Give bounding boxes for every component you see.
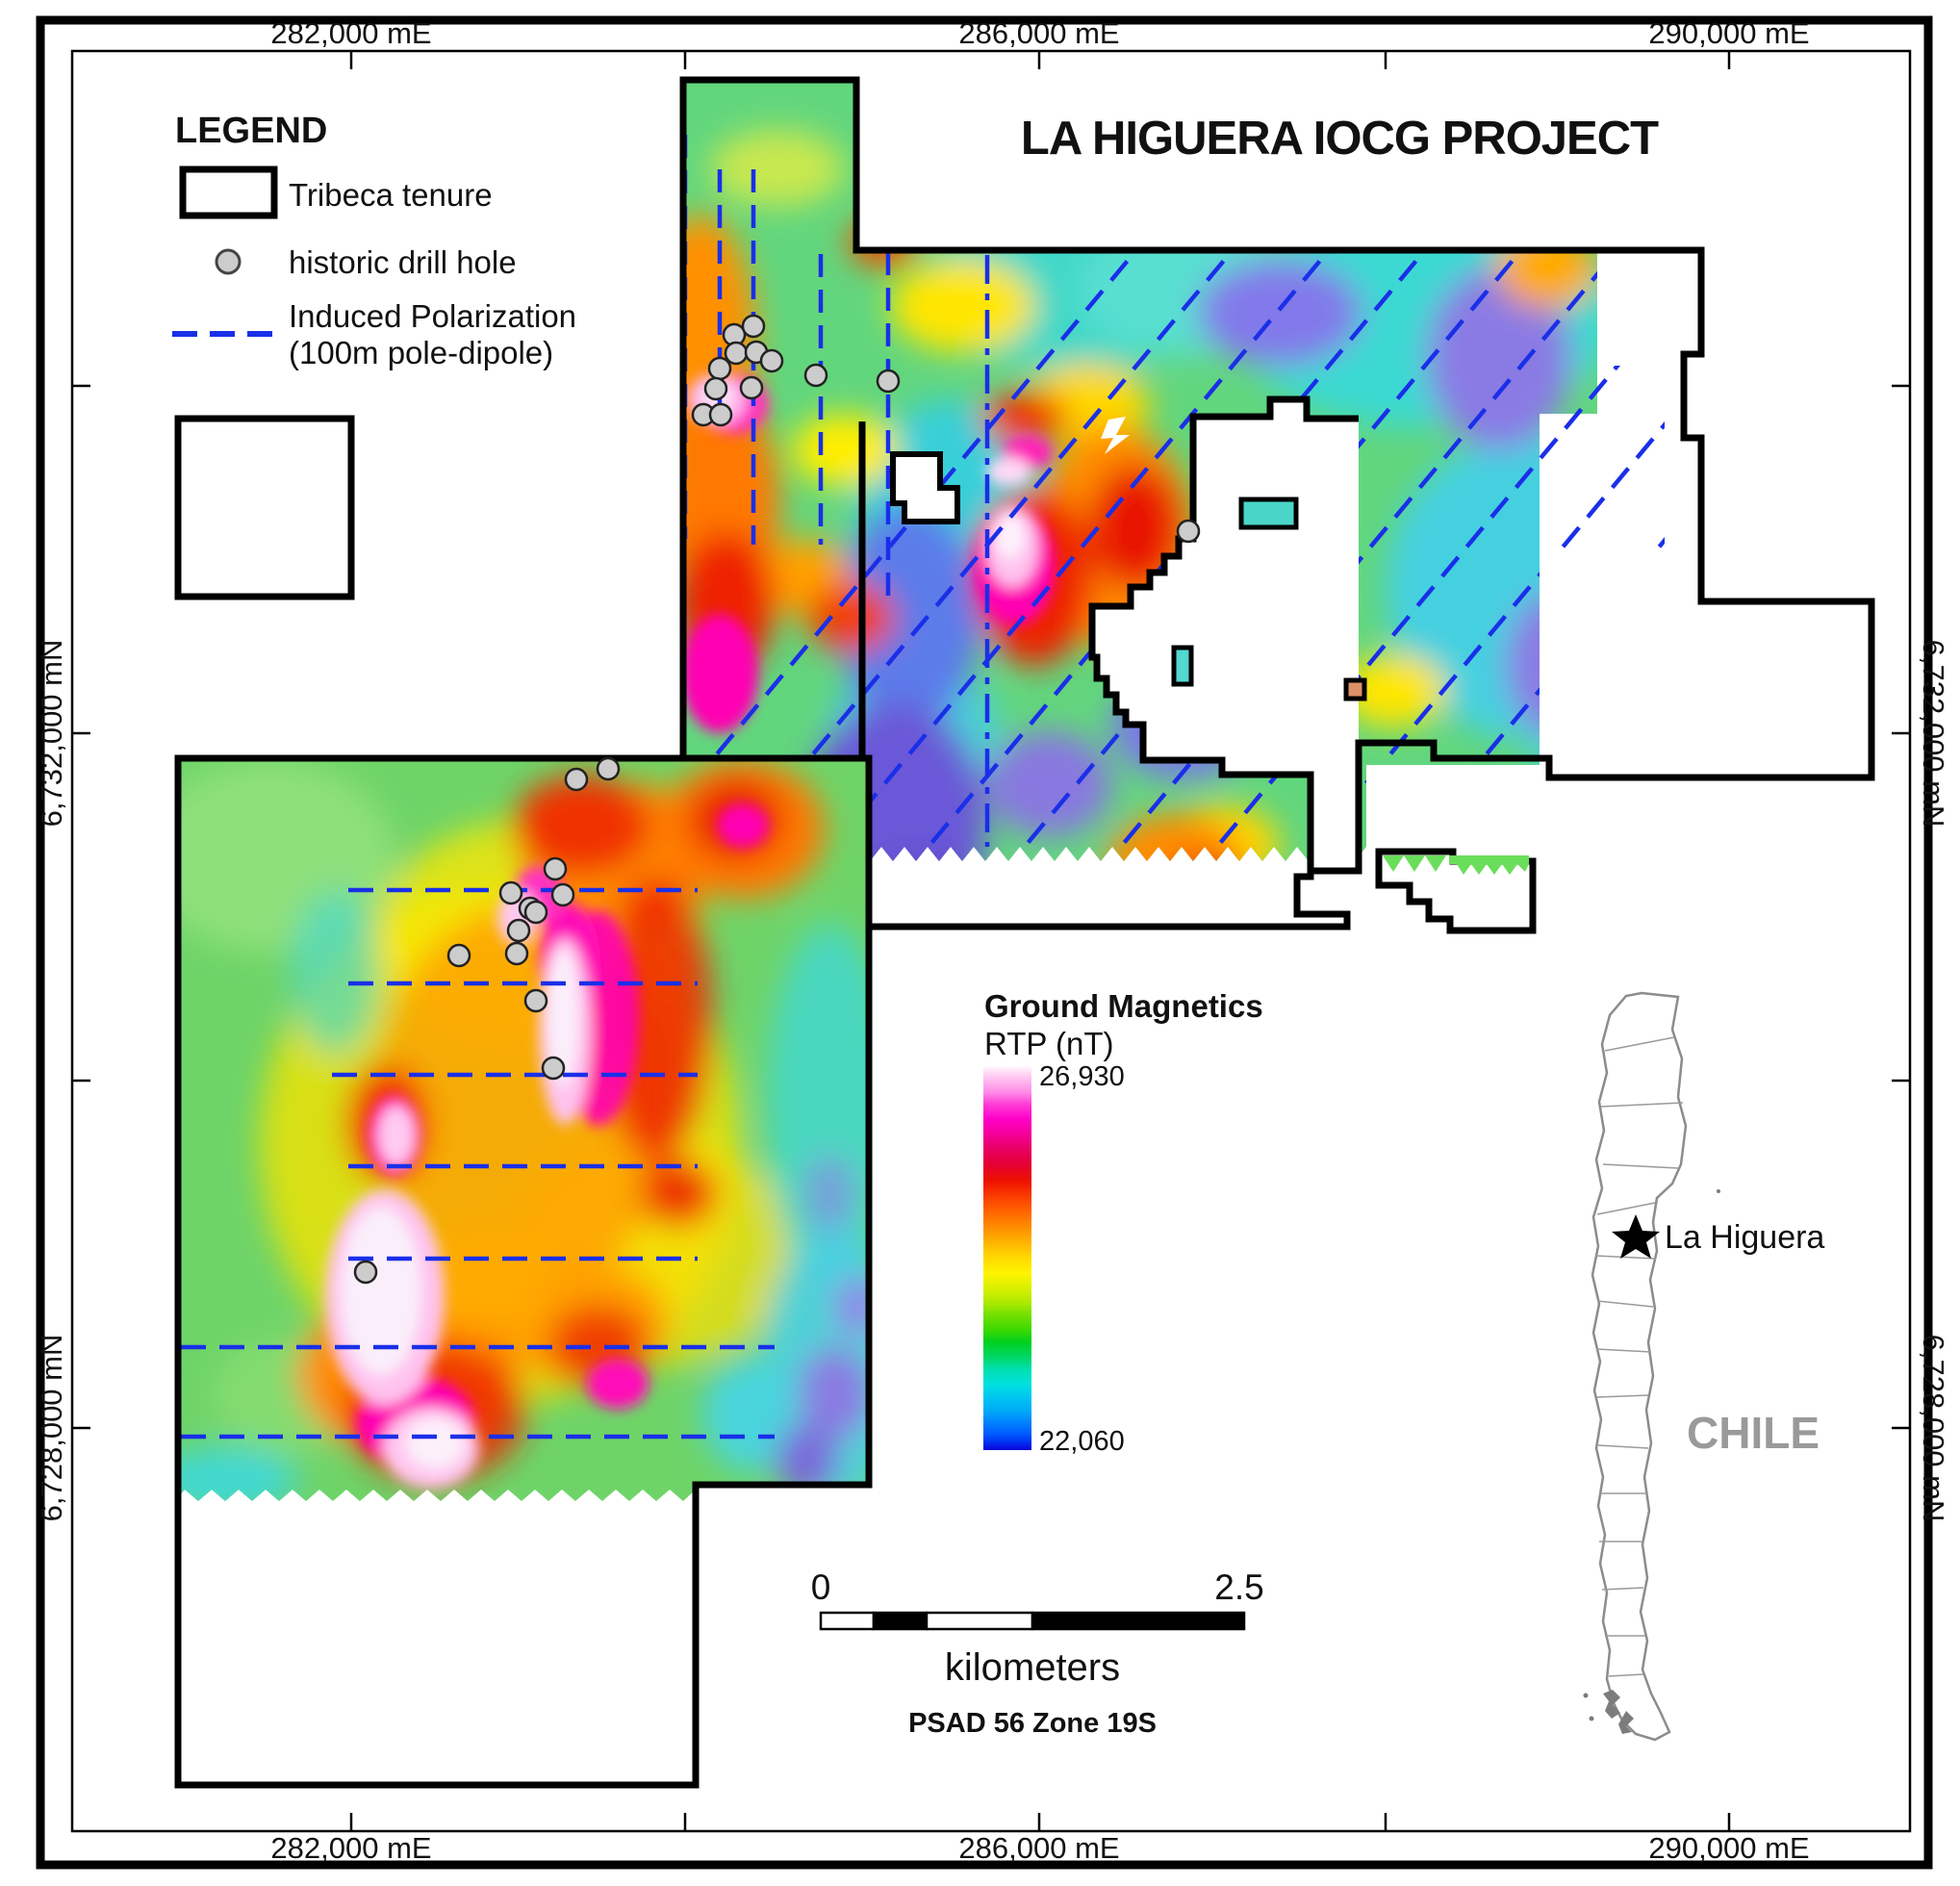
drill-hole: [725, 343, 747, 364]
inset-place-label: La Higuera: [1665, 1219, 1824, 1256]
magnetics-raster-south: [144, 751, 907, 1514]
drill-hole: [525, 902, 547, 923]
legend: LEGEND Tribeca tenure historic drill hol…: [172, 111, 576, 370]
legend-drill-label: historic drill hole: [289, 244, 517, 280]
drill-hole: [710, 404, 731, 425]
tenure-gap-strip: [869, 861, 1347, 927]
map-canvas: 282,000 mE 286,000 mE 290,000 mE 282,000…: [0, 0, 1960, 1886]
axis-label-right-6728: 6,728,000 mN: [1917, 1335, 1950, 1522]
legend-ip-label-1: Induced Polarization: [289, 298, 576, 334]
raster-remnant-teal-small: [1174, 648, 1191, 684]
axis-label-top-286: 286,000 mE: [958, 16, 1119, 50]
axis-label-top-290: 290,000 mE: [1648, 16, 1809, 50]
scalebar-segment: [874, 1613, 927, 1629]
drill-hole: [566, 769, 587, 790]
scalebar-units: kilometers: [945, 1646, 1120, 1689]
scalebar-end: 2.5: [1214, 1567, 1263, 1607]
drill-hole: [545, 858, 566, 879]
drill-hole: [506, 943, 527, 964]
tenure-outline-west-rect: [178, 419, 351, 597]
axis-label-bottom-290: 290,000 mE: [1648, 1831, 1809, 1865]
colorbar: Ground Magnetics RTP (nT) 26,930 22,060: [983, 988, 1263, 1457]
drill-hole: [508, 920, 529, 941]
drill-hole: [448, 945, 470, 966]
axis-label-left-6732: 6,732,000 mN: [35, 640, 68, 828]
axis-label-bottom-286: 286,000 mE: [958, 1831, 1119, 1865]
drill-hole: [1178, 521, 1199, 542]
legend-ip-label-2: (100m pole-dipole): [289, 335, 553, 370]
raster-remnant-teal-bar: [1241, 499, 1296, 527]
drill-hole-swatch: [216, 250, 240, 273]
drill-hole: [743, 316, 764, 337]
drill-hole: [355, 1262, 376, 1283]
scalebar-segment: [927, 1613, 1032, 1629]
drill-hole: [878, 370, 899, 392]
drill-hole: [705, 378, 726, 399]
chile-inset: La Higuera CHILE: [1584, 993, 1825, 1740]
colorbar-ramp: [983, 1065, 1031, 1450]
colorbar-max-label: 26,930: [1039, 1061, 1125, 1092]
axis-label-bottom-282: 282,000 mE: [270, 1831, 431, 1865]
drill-hole: [709, 358, 730, 379]
legend-tenure-label: Tribeca tenure: [289, 177, 493, 213]
sawtooth-raster-remnant: [1383, 855, 1529, 875]
scalebar-start: 0: [811, 1567, 831, 1607]
axis-label-right-6732: 6,732,000 mN: [1917, 640, 1950, 828]
scalebar-segment: [821, 1613, 874, 1629]
inset-country-label: CHILE: [1687, 1408, 1820, 1458]
tenure-swatch: [183, 169, 274, 216]
colorbar-min-label: 22,060: [1039, 1426, 1125, 1457]
scalebar-segment: [1032, 1613, 1244, 1629]
raster-remnant-orange: [1346, 680, 1364, 699]
drill-hole: [525, 990, 547, 1011]
drill-hole: [500, 882, 522, 904]
colorbar-subtitle: RTP (nT): [984, 1026, 1113, 1061]
legend-heading: LEGEND: [175, 111, 327, 151]
drill-hole: [761, 350, 782, 371]
drill-hole: [543, 1058, 564, 1079]
map-page: 282,000 mE 286,000 mE 290,000 mE 282,000…: [0, 0, 1960, 1886]
drill-hole: [805, 365, 827, 386]
page-title: LA HIGUERA IOCG PROJECT: [1021, 113, 1659, 165]
axis-label-left-6728: 6,728,000 mN: [35, 1335, 68, 1522]
drill-hole: [741, 377, 762, 398]
axis-label-top-282: 282,000 mE: [270, 16, 431, 50]
colorbar-title: Ground Magnetics: [984, 988, 1263, 1024]
scalebar-datum: PSAD 56 Zone 19S: [908, 1708, 1157, 1739]
scalebar: 0 2.5 kilometers PSAD 56 Zone 19S: [811, 1567, 1264, 1739]
drill-hole: [552, 884, 573, 905]
drill-hole: [598, 758, 619, 779]
